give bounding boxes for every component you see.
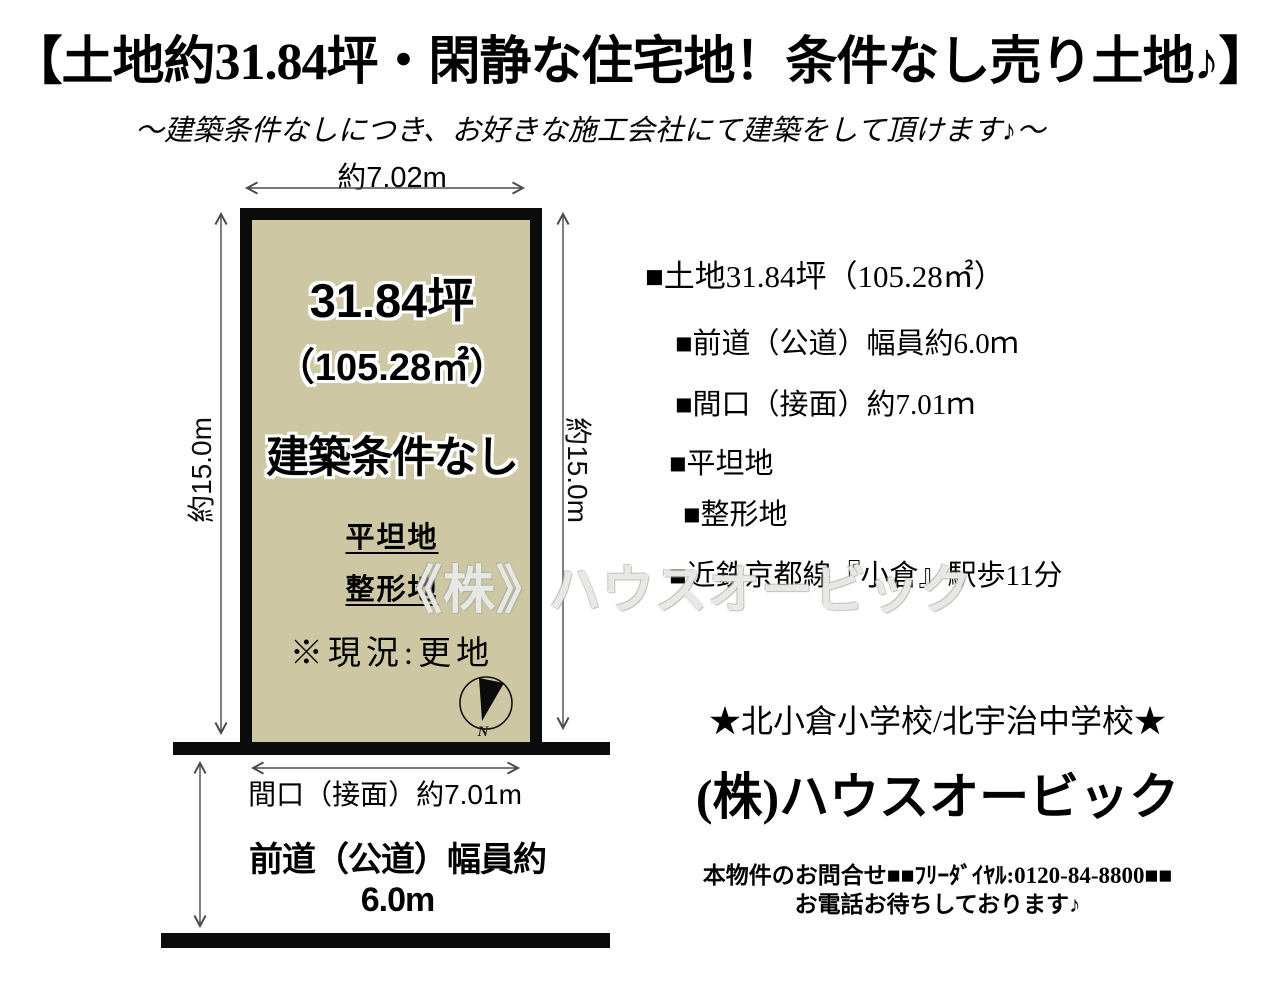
compass-icon: N — [460, 677, 512, 740]
watermark: 《株》ハウスオービック — [390, 548, 973, 623]
dimension-arrows-overlay: N — [0, 0, 1280, 992]
flyer-canvas: 【土地約31.84坪・閑静な住宅地！条件なし売り土地♪】 ～建築条件なしにつき、… — [0, 0, 1280, 992]
compass-n-label: N — [477, 724, 490, 740]
